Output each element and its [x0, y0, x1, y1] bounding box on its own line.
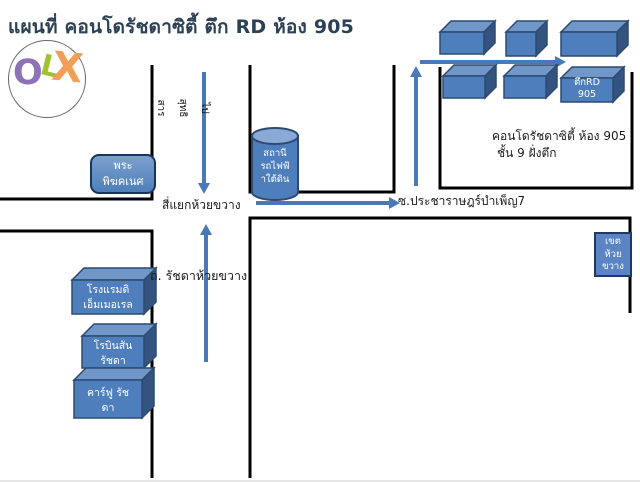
street-up-line2: สุทธิ: [176, 99, 188, 118]
district-line1: เขต: [596, 236, 630, 249]
cylinder-top: [252, 128, 298, 144]
street-up-line1: ไป: [198, 102, 210, 113]
building-face: [74, 368, 154, 380]
building-face: [72, 268, 156, 280]
building-box: [504, 65, 557, 98]
building-box: [443, 65, 496, 98]
street-up-line3: สาร: [154, 99, 166, 116]
soi-label: ซ.ประชาราษฎร์บำเพ็ญ7: [398, 192, 525, 211]
robinson-label: โรบินสัน รัชดา: [82, 339, 144, 369]
condo-note-line1: คอนโดรัชดาซิตี้ ห้อง 905: [492, 128, 626, 145]
robinson-line1: โรบินสัน: [82, 339, 144, 354]
hotel-label: โรงแรมดิ เอ็มเมอเรล: [72, 283, 144, 313]
station-line1: สถานี: [250, 147, 300, 160]
condo-note-line2: ชั้น 9 ฝั่งตึก: [492, 145, 626, 162]
building-face: [443, 76, 485, 98]
building-face: [504, 76, 546, 98]
building-face: [440, 32, 484, 54]
district-box: เขต ห้วย ขวาง: [594, 232, 632, 277]
carrefour-line2: ดา: [74, 401, 142, 416]
map-screenshot: O L X แผนที่ คอนโดรัชดาซิตี้ ตึก RD ห้อง…: [0, 0, 640, 482]
district-line2: ห้วย: [596, 249, 630, 262]
street-up-label: ไป สุทธิ สาร: [154, 80, 210, 136]
building-box: [440, 21, 495, 54]
building-face: [561, 32, 617, 56]
shrine-box: พระ พิฆคเนศ: [90, 154, 156, 194]
olx-logo: O L X: [8, 40, 86, 118]
hotel-line2: เอ็มเมอเรล: [72, 298, 144, 313]
road-label: ถ. รัชดาห้วยขวาง: [150, 266, 247, 286]
hotel-line1: โรงแรมดิ: [72, 283, 144, 298]
robinson-line2: รัชดา: [82, 354, 144, 369]
building-rd-label: ตึกRD 905: [558, 77, 616, 100]
district-line3: ขวาง: [596, 261, 630, 274]
building-box: [561, 21, 628, 56]
station-label: สถานี รถไฟฟ้ าใต้ดิน: [250, 147, 300, 186]
intersection-label: สี่แยกห้วยขวาง: [162, 196, 241, 215]
arrow-up-condo-head: [410, 66, 422, 77]
arrow-down-head: [198, 183, 210, 194]
station-line3: าใต้ดิน: [250, 173, 300, 186]
building-face: [506, 32, 536, 56]
block-bottom-right: [250, 218, 630, 478]
building-box: [506, 21, 547, 56]
olx-letter-x: X: [50, 44, 85, 93]
page-title: แผนที่ คอนโดรัชดาซิตี้ ตึก RD ห้อง 905: [8, 12, 354, 42]
shrine-line1: พระ: [92, 158, 154, 174]
building-rd-line2: 905: [558, 89, 616, 101]
arrow-up-mid-head: [200, 224, 212, 235]
condo-note: คอนโดรัชดาซิตี้ ห้อง 905 ชั้น 9 ฝั่งตึก: [492, 128, 626, 162]
carrefour-label: คาร์ฟู รัช ดา: [74, 386, 142, 416]
station-line2: รถไฟฟ้: [250, 160, 300, 173]
building-rd-line1: ตึกRD: [558, 77, 616, 89]
carrefour-line1: คาร์ฟู รัช: [74, 386, 142, 401]
shrine-line2: พิฆคเนศ: [92, 174, 154, 190]
